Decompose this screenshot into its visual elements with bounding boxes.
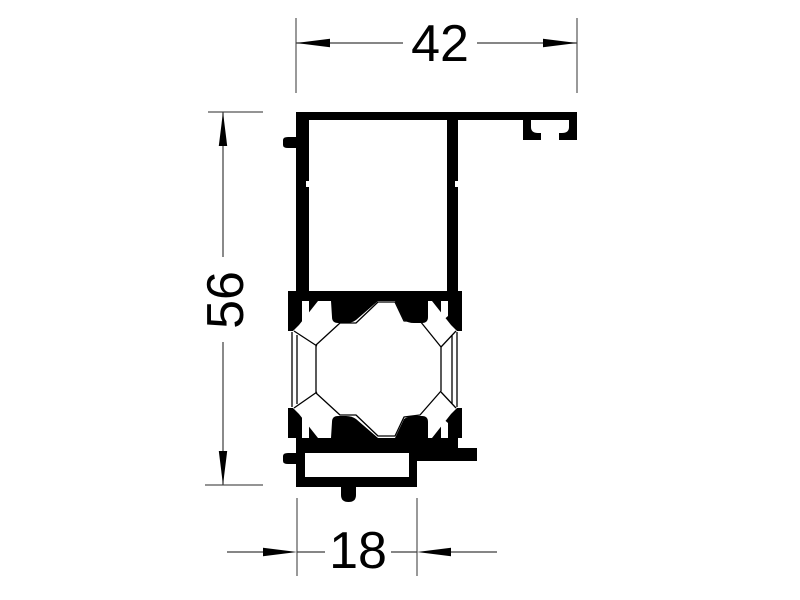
dimension-overall-height: 56 [197, 112, 263, 485]
profile-cross-section [283, 112, 577, 502]
bottom-box [296, 448, 417, 487]
wall-notch-left [306, 181, 309, 187]
gasket-lug-bottom-left [331, 416, 378, 438]
arrowhead-right-icon [543, 39, 577, 47]
lower-chamber-thin-walls [292, 302, 457, 436]
dim-value-top-width: 42 [411, 15, 469, 73]
arrowhead-down-icon [219, 451, 227, 485]
right-step-slab [417, 448, 477, 461]
top-flange-bar [296, 112, 577, 120]
gasket-wedge-bottom-left-slot [302, 417, 309, 438]
left-fin-tab-upper [283, 137, 296, 148]
wall-notch-right [455, 181, 458, 187]
glazing-pocket-bottom-bar [288, 291, 462, 301]
arrowhead-left-icon [296, 39, 330, 47]
left-fin-tab-lower [283, 453, 296, 464]
gasket-lug-top-left [331, 301, 378, 323]
profile-drawing-svg: 42 56 18 [0, 0, 800, 600]
tslot-left-hook [523, 120, 541, 140]
dimension-bottom-width: 18 [227, 498, 497, 580]
arrowhead-up-icon [219, 112, 227, 146]
tslot-right-hook [559, 120, 577, 140]
center-wall [447, 112, 458, 301]
dimension-top-width: 42 [296, 15, 577, 93]
arrowhead-inward-left-icon [417, 548, 451, 556]
dim-value-bottom-width: 18 [329, 522, 387, 580]
corner-connector-bottom-right [441, 392, 456, 408]
bottom-center-tab [341, 487, 356, 502]
bottom-bar [296, 438, 458, 448]
dim-value-overall-height: 56 [197, 271, 255, 329]
drawing-canvas: 42 56 18 [0, 0, 800, 600]
corner-connector-top-right [441, 331, 456, 347]
gasket-wedge-top-left-slot [302, 301, 309, 322]
left-wall [296, 112, 309, 301]
arrowhead-inward-right-icon [263, 548, 297, 556]
